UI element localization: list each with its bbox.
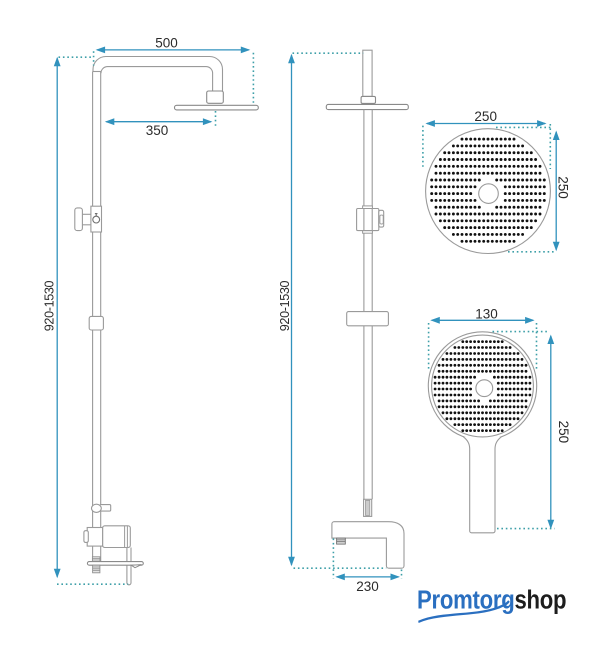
svg-text:130: 130 [475,306,498,321]
svg-text:500: 500 [155,35,178,50]
svg-text:250: 250 [556,421,571,444]
svg-text:250: 250 [556,176,571,199]
svg-text:920-1530: 920-1530 [43,280,57,331]
svg-text:230: 230 [356,579,379,594]
svg-text:250: 250 [474,109,497,124]
svg-text:920-1530: 920-1530 [278,280,292,331]
svg-text:350: 350 [146,123,169,138]
